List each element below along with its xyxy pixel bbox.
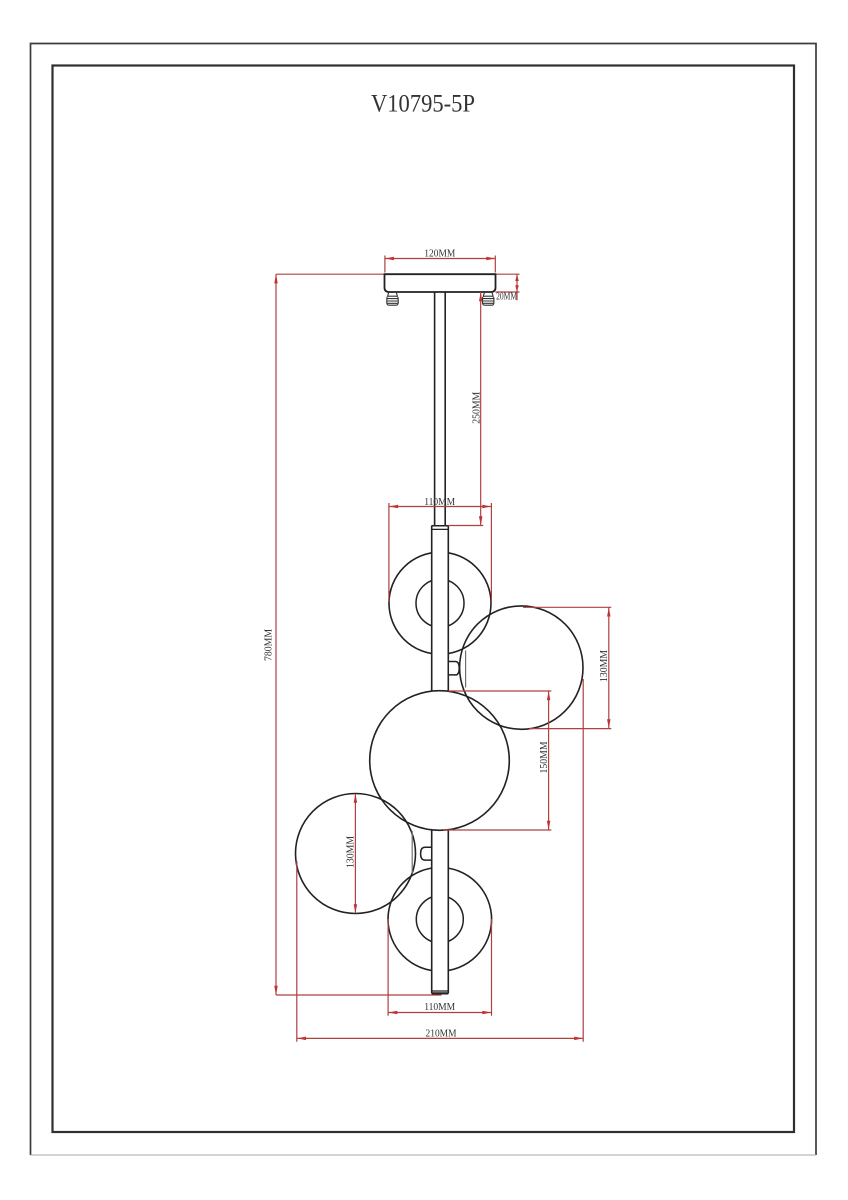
svg-text:V10795-5P: V10795-5P: [371, 91, 475, 118]
svg-text:250MM: 250MM: [472, 391, 483, 424]
svg-text:780MM: 780MM: [263, 628, 274, 661]
svg-text:130MM: 130MM: [599, 649, 610, 682]
svg-text:150MM: 150MM: [539, 741, 550, 774]
svg-text:110MM: 110MM: [424, 497, 456, 508]
svg-text:130MM: 130MM: [345, 835, 356, 868]
svg-text:120MM: 120MM: [424, 249, 456, 260]
svg-text:210MM: 210MM: [426, 1028, 458, 1039]
svg-text:20MM: 20MM: [496, 292, 517, 303]
svg-text:110MM: 110MM: [424, 1002, 456, 1013]
